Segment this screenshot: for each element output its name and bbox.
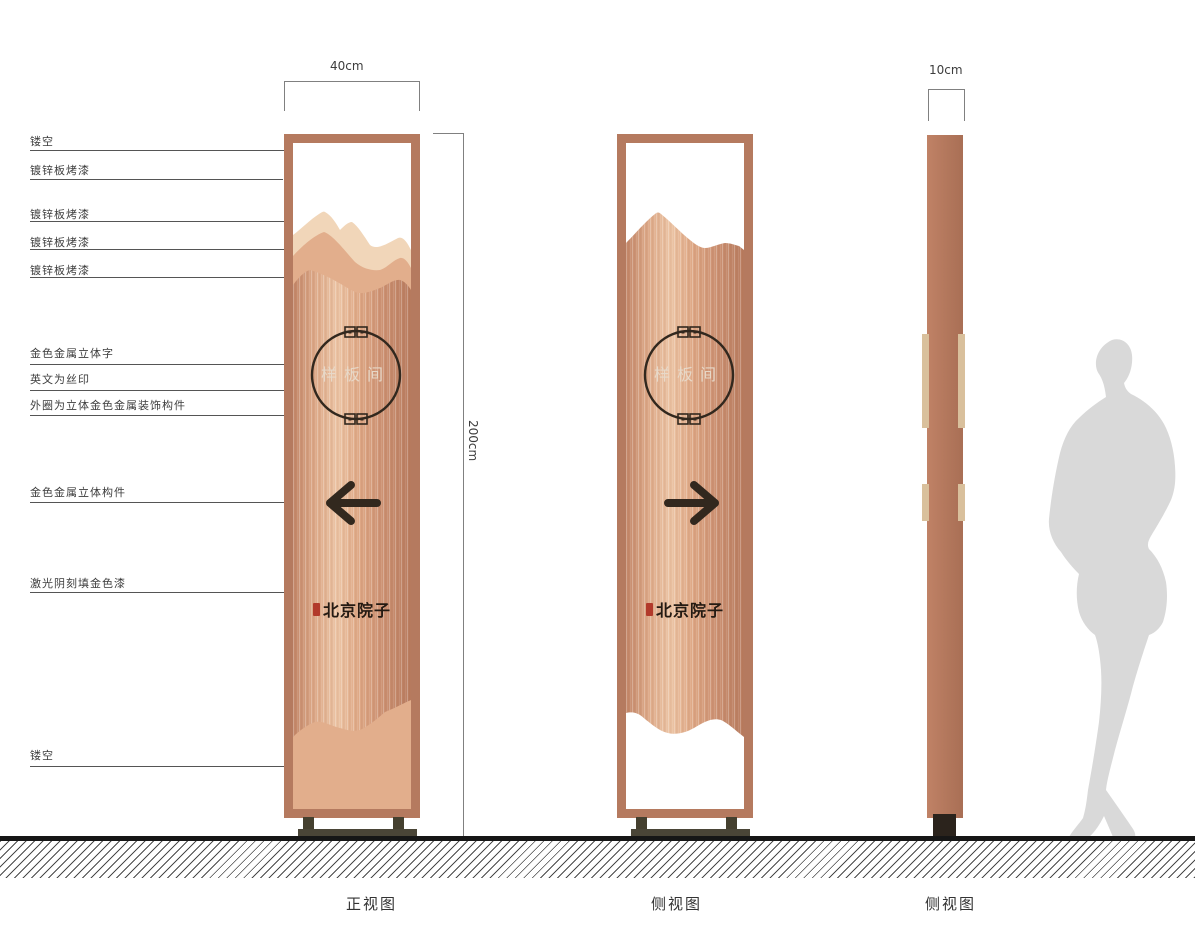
human-silhouette [1043, 338, 1179, 840]
ground-hatch [0, 841, 1195, 878]
callout-label-gold-component: 金色金属立体构件 [30, 484, 126, 500]
callout-label-gold-letters: 金色金属立体字 [30, 345, 114, 361]
dimension-tick [928, 89, 929, 121]
callout-line [30, 249, 290, 250]
callout-line [30, 364, 323, 365]
dimension-tick [964, 89, 965, 121]
dimension-height-line [463, 134, 464, 838]
plaque-text: 样板间 [646, 363, 724, 387]
profile-gold-strip [922, 334, 929, 428]
dimension-front-width: 40cm [330, 59, 364, 73]
signage-spec-drawing: 镂空 镀锌板烤漆 镀锌板烤漆 镀锌板烤漆 镀锌板烤漆 金色金属立体字 英文为丝印… [0, 0, 1195, 927]
callout-label-silkscreen: 英文为丝印 [30, 371, 90, 387]
callout-label-outer-ring: 外圈为立体金色金属装饰构件 [30, 397, 186, 413]
sign-front-view: 样板间 北京院子 [284, 134, 420, 818]
dimension-height: 200cm [466, 420, 480, 461]
callout-label-hollow-top: 镂空 [30, 133, 54, 149]
view-label-front: 正视图 [346, 893, 397, 914]
dimension-bracket [928, 89, 965, 90]
copper-panel-texture [626, 213, 744, 738]
dimension-tick [419, 81, 420, 111]
profile-gold-strip [958, 334, 965, 428]
callout-line [30, 221, 322, 222]
view-label-side1: 侧视图 [651, 893, 702, 914]
plaque-text: 样板间 [313, 363, 391, 387]
callout-label-galvanized-3: 镀锌板烤漆 [30, 234, 90, 250]
profile-gold-strip [958, 484, 965, 521]
callout-line [30, 179, 283, 180]
callout-line [30, 277, 289, 278]
seal-stamp-icon [313, 603, 320, 616]
view-label-side2: 侧视图 [925, 893, 976, 914]
brand-text: 北京院子 [323, 597, 391, 621]
sign-profile-view [927, 135, 963, 818]
profile-gold-strip [922, 484, 929, 521]
callout-label-galvanized-1: 镀锌板烤漆 [30, 162, 90, 178]
brand-calligraphy: 北京院子 [305, 598, 399, 620]
dimension-side-width: 10cm [929, 63, 963, 77]
seal-stamp-icon [646, 603, 653, 616]
callout-label-hollow-bottom: 镂空 [30, 747, 54, 763]
callout-label-laser-engraved: 激光阴刻填金色漆 [30, 575, 126, 591]
brand-text: 北京院子 [656, 597, 724, 621]
sign-front-artwork [293, 143, 411, 809]
callout-line [30, 592, 306, 593]
callout-label-galvanized-4: 镀锌板烤漆 [30, 262, 90, 278]
sign-side-view: 样板间 北京院子 [617, 134, 753, 818]
callout-line [30, 766, 302, 767]
sign-side-artwork [626, 143, 744, 809]
callout-label-galvanized-2: 镀锌板烤漆 [30, 206, 90, 222]
dimension-tick [284, 81, 285, 111]
brand-calligraphy: 北京院子 [638, 598, 732, 620]
dimension-bracket [284, 81, 420, 82]
dimension-tick [433, 133, 464, 134]
callout-line [30, 150, 307, 151]
